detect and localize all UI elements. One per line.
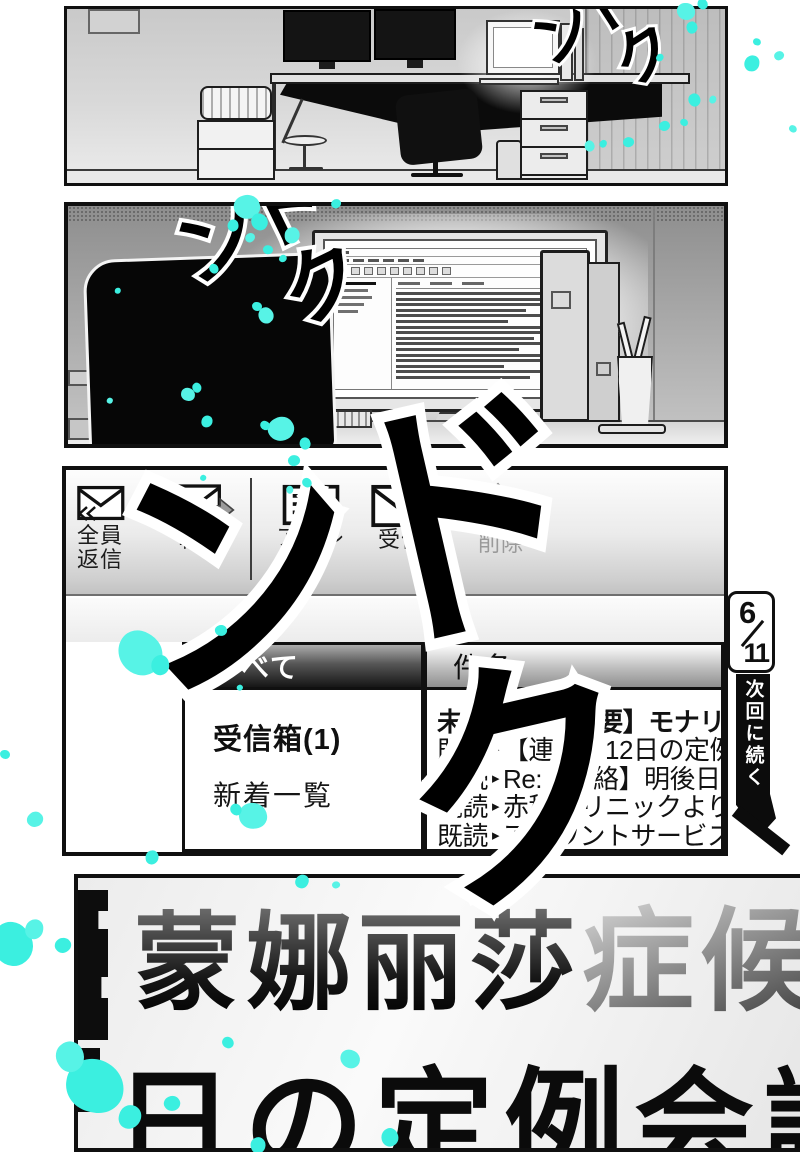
side-table [197, 120, 275, 180]
to-be-continued-ribbon: 次回に続く [736, 674, 770, 794]
mini-text-line [396, 348, 519, 351]
pixel-glyph-fragment [78, 890, 108, 1040]
ink-splatter [24, 918, 44, 940]
floor [67, 169, 725, 183]
ink-splatter [52, 935, 74, 956]
mini-text-line [396, 298, 541, 301]
monitor-stand [407, 60, 423, 68]
monitor-stand [319, 62, 335, 69]
ink-splatter [753, 37, 762, 45]
drawer [522, 148, 586, 176]
keyboard [479, 78, 559, 85]
mini-text-line [396, 326, 554, 329]
ink-splatter [0, 914, 42, 974]
chair-outline-stem [303, 146, 306, 168]
panel-room-wide: ドクン [64, 6, 728, 186]
wall-corner-line [653, 206, 655, 444]
mini-text-line [396, 320, 508, 323]
drawer [522, 120, 586, 148]
pc-tower [496, 140, 522, 180]
monitor-off-right [374, 9, 456, 60]
ink-splatter [744, 55, 760, 72]
basket [200, 86, 272, 120]
pixel-glyph-fragment [78, 1048, 100, 1112]
ink-splatter [24, 808, 46, 830]
page-current: 6 [739, 595, 756, 631]
office-chair-base [411, 173, 463, 177]
manga-page: ドクン [0, 0, 800, 1152]
to-be-continued-label: 次回に続く [740, 679, 767, 789]
wall-frame [88, 9, 140, 34]
monitor-off-left [283, 10, 371, 62]
mini-text-line [396, 342, 560, 345]
page-number-badge: 6 11 [727, 591, 775, 673]
page-total: 11 [743, 638, 768, 669]
pen-cup [617, 356, 653, 430]
ink-splatter [0, 750, 10, 760]
mini-text-line [396, 331, 563, 334]
chair-outline-seat [283, 135, 327, 146]
office-chair [395, 88, 484, 166]
ink-splatter [772, 49, 786, 62]
mini-text-line [396, 303, 560, 306]
pc-tower [587, 262, 620, 422]
desk-tray [598, 424, 666, 434]
ink-splatter [788, 124, 798, 134]
chair-outline-base [289, 167, 323, 170]
mini-text-line [396, 309, 526, 312]
mini-text-line [396, 337, 534, 340]
